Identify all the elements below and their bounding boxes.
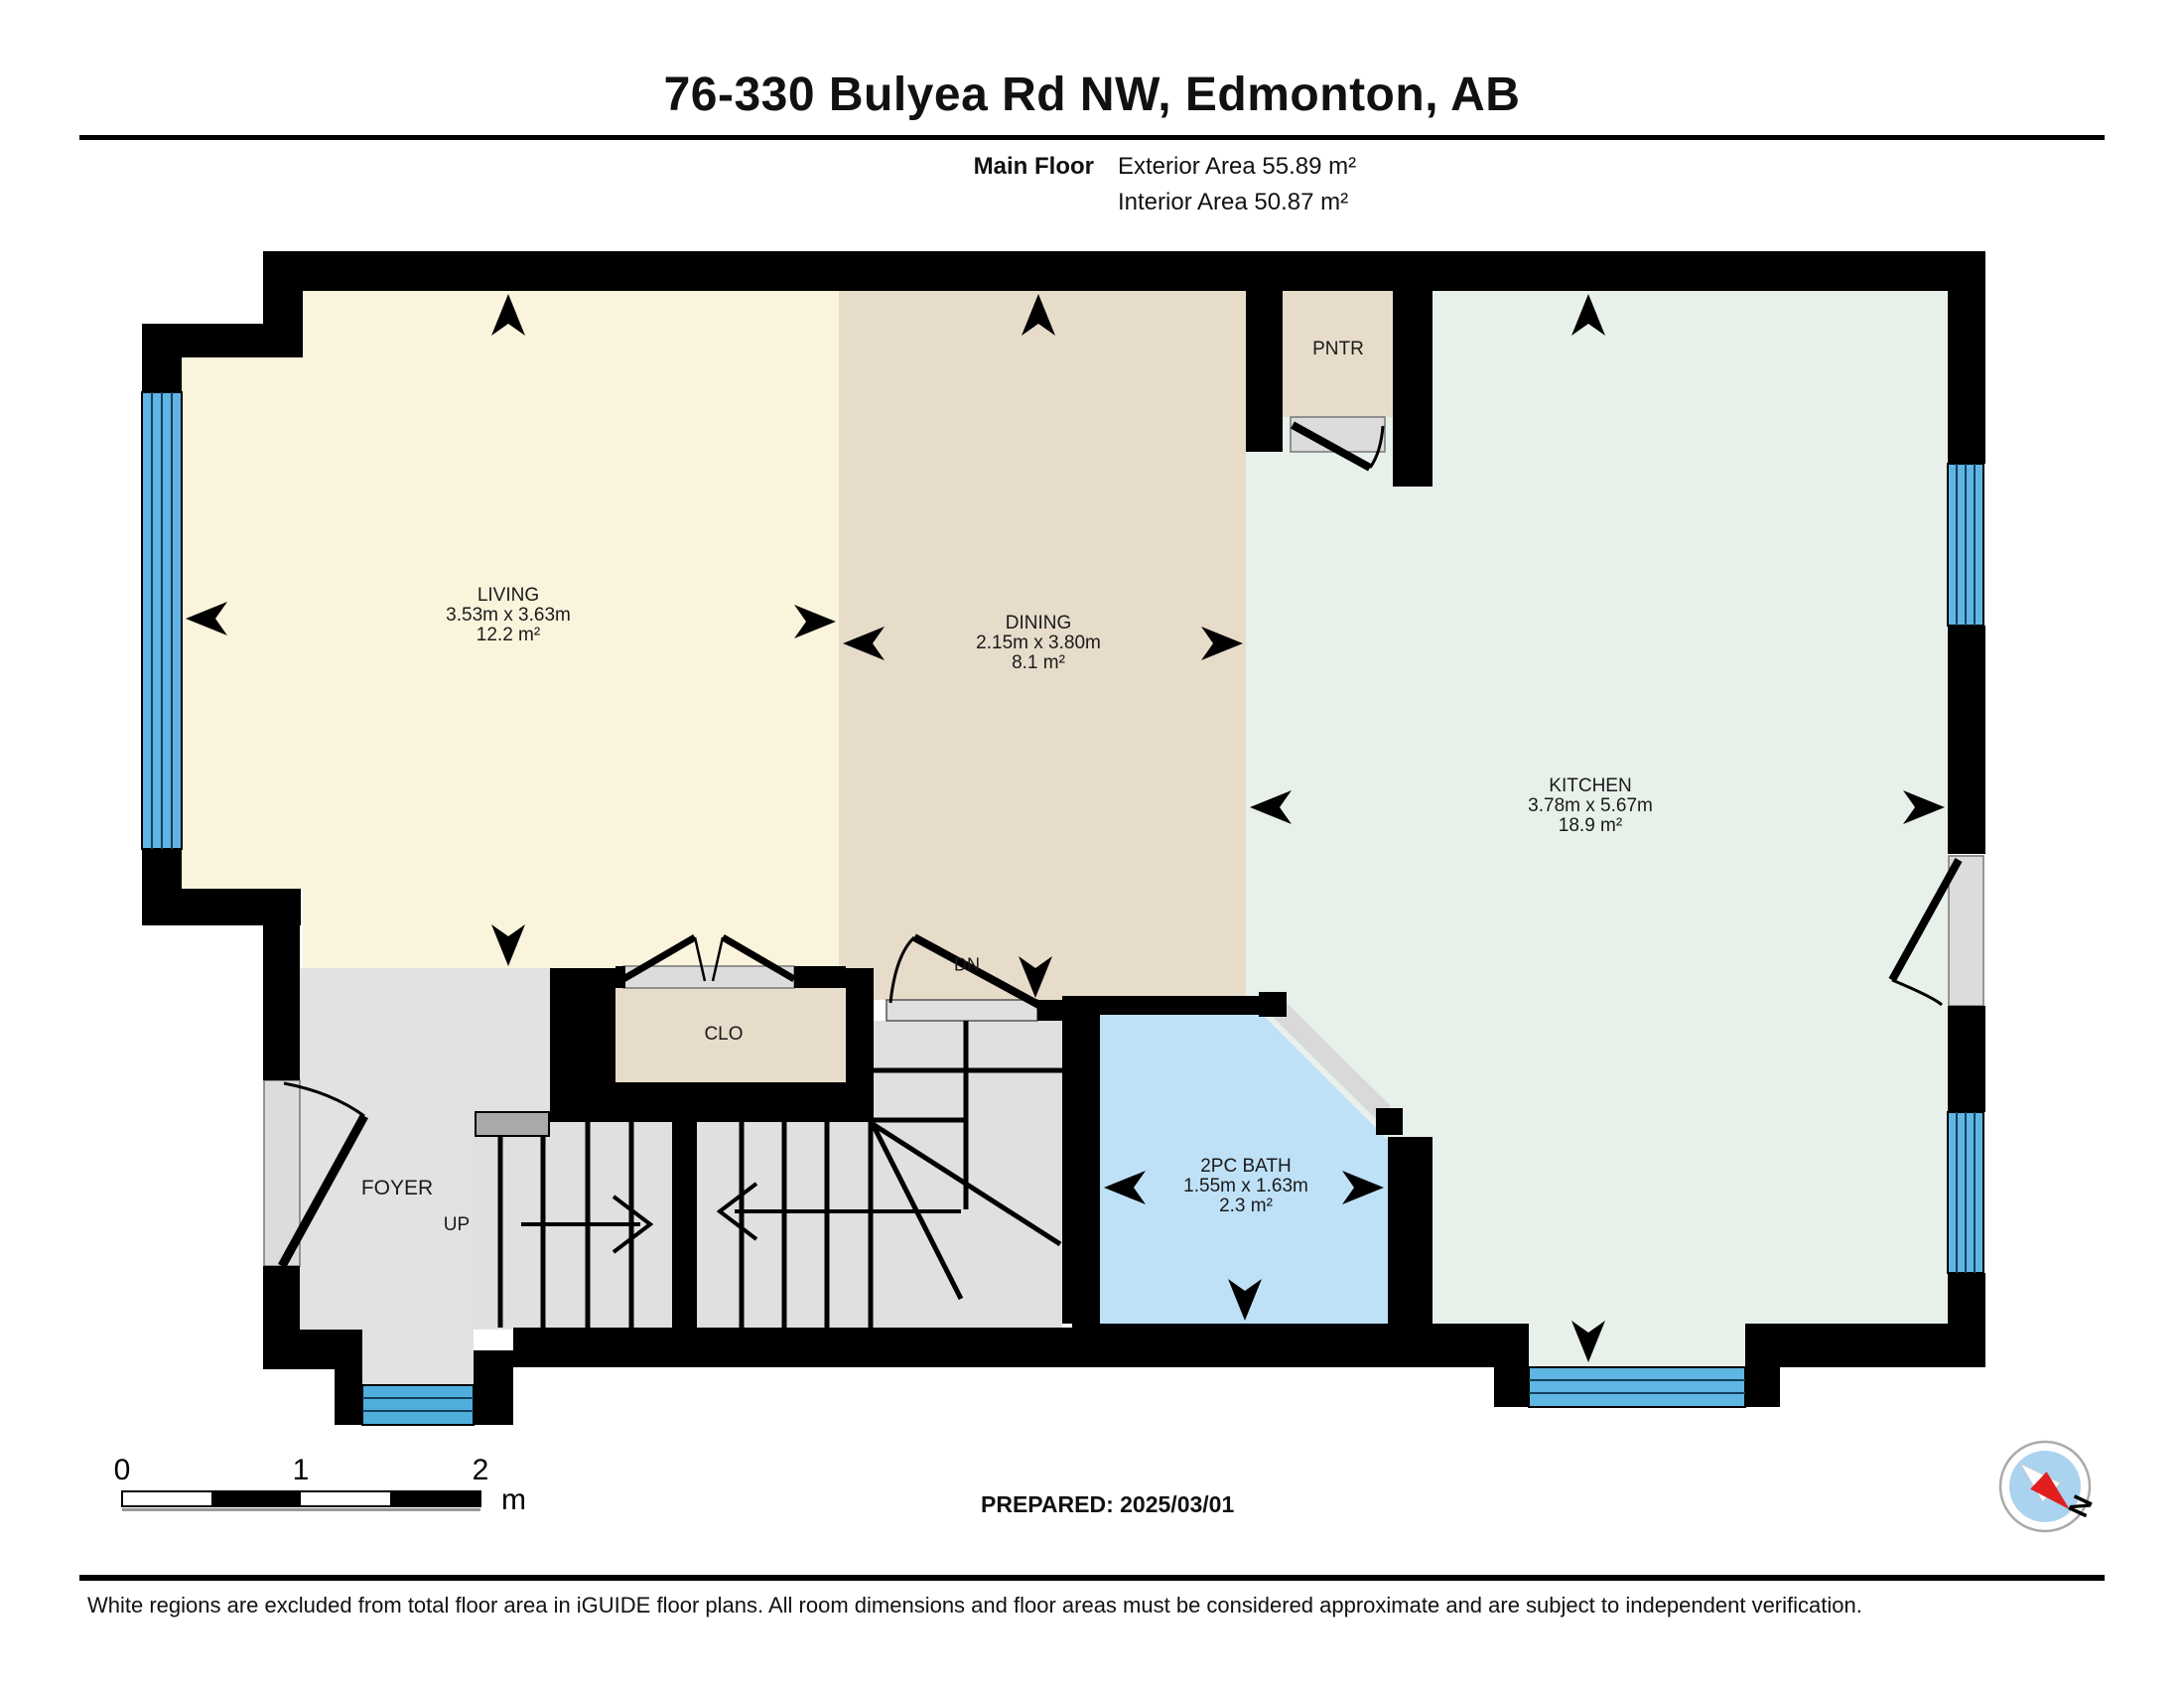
handrail [476, 1112, 549, 1136]
scale-tick-2: 2 [473, 1454, 489, 1486]
bath-area: 2.3 m² [1183, 1196, 1308, 1216]
kitchen-name: KITCHEN [1528, 776, 1653, 796]
dining-room-area: 8.1 m² [976, 653, 1101, 673]
kitchen-window-upper [1948, 464, 1983, 626]
compass-icon: N [2000, 1442, 2099, 1531]
kitchen-label: KITCHEN 3.78m x 5.67m 18.9 m² [1528, 776, 1653, 836]
living-window [142, 392, 182, 849]
bath-name: 2PC BATH [1183, 1157, 1308, 1177]
stair-landing-strip [887, 1000, 1037, 1021]
bath-label: 2PC BATH 1.55m x 1.63m 2.3 m² [1183, 1157, 1308, 1216]
prepared-date: PREPARED: 2025/03/01 [981, 1491, 1234, 1518]
living-room-fill [303, 291, 839, 968]
stairs-down-label: DN [954, 955, 980, 976]
dining-room-label: DINING 2.15m x 3.80m 8.1 m² [976, 614, 1101, 673]
foyer-door-bay-fill [362, 1330, 474, 1385]
kitchen-dimensions: 3.78m x 5.67m [1528, 796, 1653, 816]
scale-unit: m [501, 1483, 526, 1516]
living-room-dimensions: 3.53m x 3.63m [446, 606, 571, 626]
kitchen-right-door-jamb [1949, 856, 1983, 1006]
living-room-label: LIVING 3.53m x 3.63m 12.2 m² [446, 586, 571, 645]
dining-room-name: DINING [976, 614, 1101, 633]
kitchen-area: 18.9 m² [1528, 816, 1653, 836]
closet-door-track [623, 966, 794, 988]
pantry-label: PNTR [1312, 339, 1364, 360]
dining-room-dimensions: 2.15m x 3.80m [976, 633, 1101, 653]
scale-tick-1: 1 [293, 1454, 310, 1486]
kitchen-bay-fill [1529, 1321, 1745, 1367]
foyer-label: FOYER [361, 1177, 433, 1200]
closet-label: CLO [704, 1024, 743, 1046]
header-divider [79, 135, 2105, 140]
living-room-area: 12.2 m² [446, 626, 571, 645]
disclaimer-text: White regions are excluded from total fl… [87, 1593, 2132, 1618]
interior-area-label: Interior Area 50.87 m² [1118, 189, 1348, 216]
floor-label: Main Floor [0, 153, 1094, 181]
stairs-up-label: UP [444, 1214, 470, 1236]
scale-tick-0: 0 [114, 1454, 131, 1486]
footer-divider [79, 1575, 2105, 1581]
floor-plan: 0 1 2 m N [0, 0, 2184, 1688]
kitchen-window-lower [1948, 1112, 1983, 1273]
kitchen-bay-window [1529, 1367, 1745, 1407]
scale-bar: 0 1 2 m [114, 1454, 526, 1516]
page-title: 76-330 Bulyea Rd NW, Edmonton, AB [0, 68, 2184, 122]
bath-dimensions: 1.55m x 1.63m [1183, 1177, 1308, 1196]
living-room-name: LIVING [446, 586, 571, 606]
front-door-glass [362, 1385, 474, 1425]
exterior-area-label: Exterior Area 55.89 m² [1118, 153, 1356, 181]
